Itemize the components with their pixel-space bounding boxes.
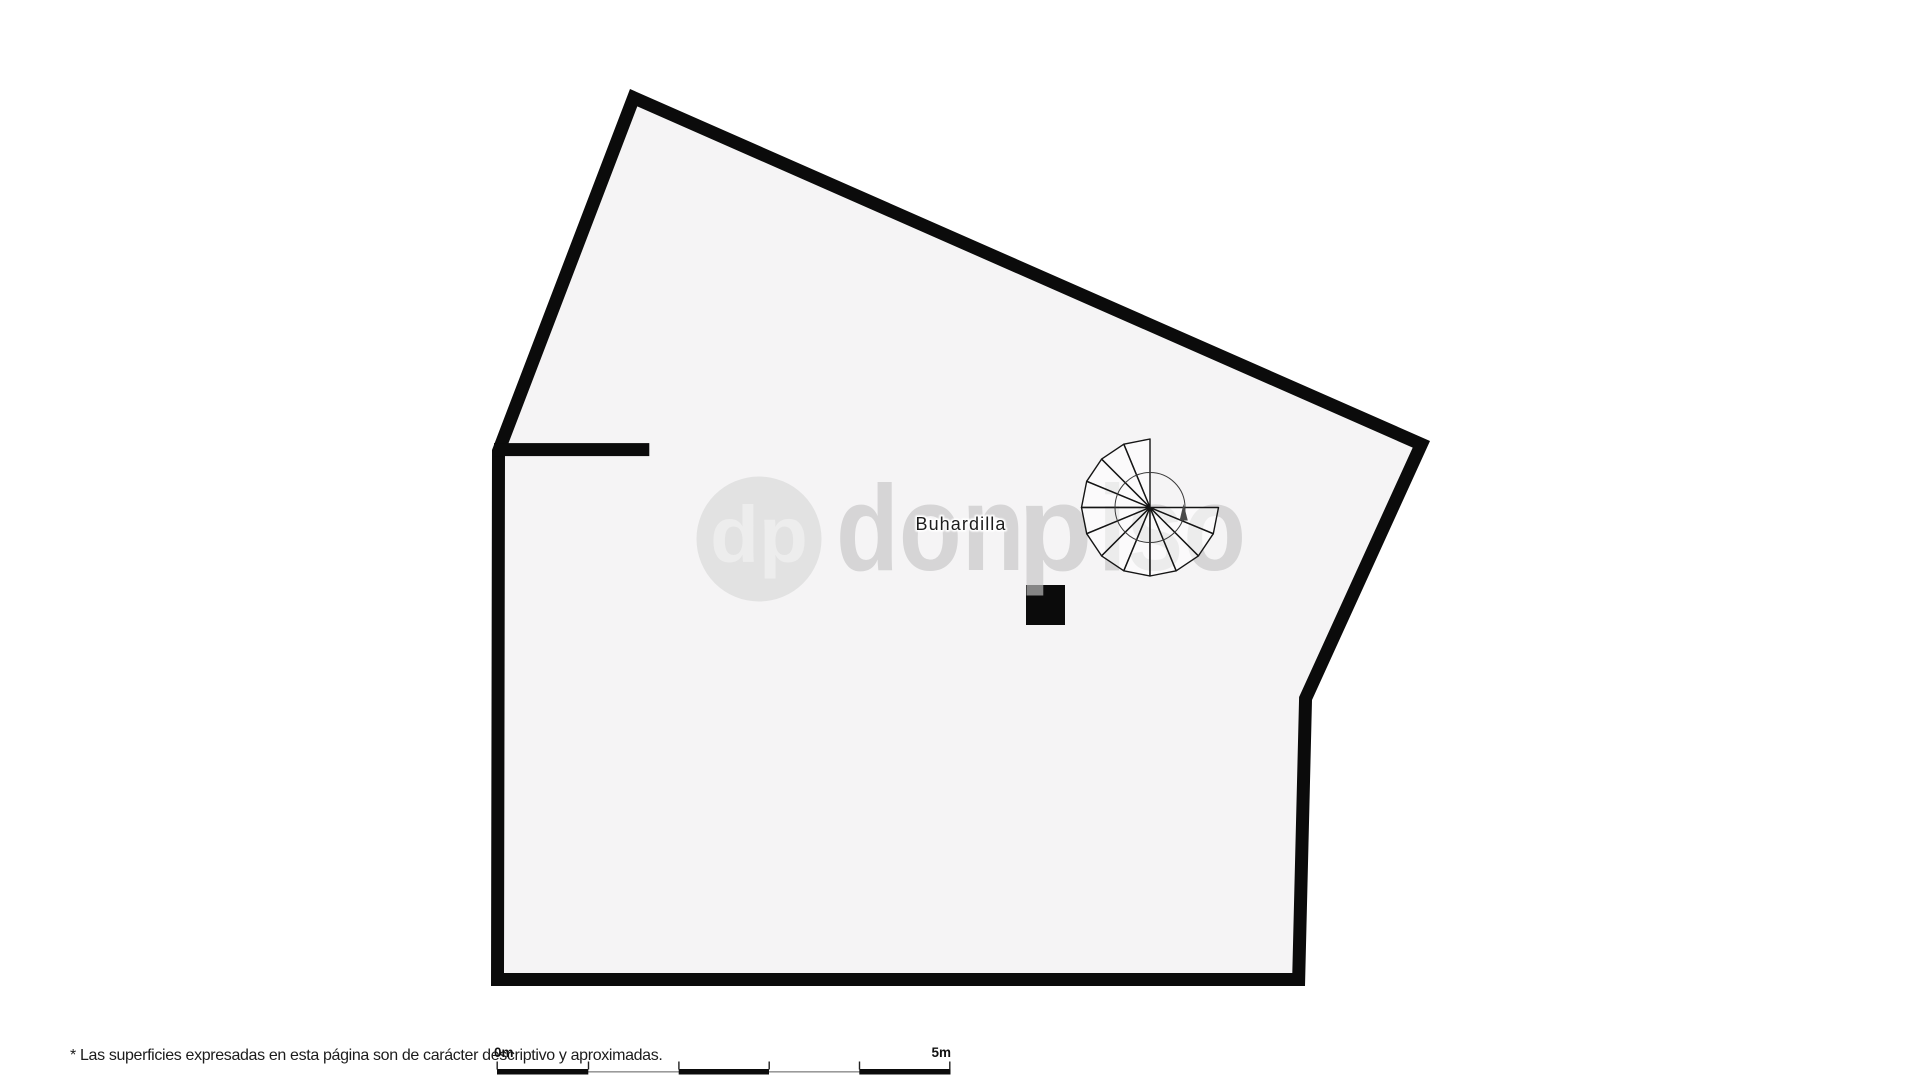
svg-text:5m: 5m: [931, 1045, 951, 1060]
svg-text:p: p: [1018, 460, 1093, 596]
svg-text:dp: dp: [710, 490, 808, 579]
svg-text:* Las superficies expresadas e: * Las superficies expresadas en esta pág…: [70, 1047, 662, 1064]
svg-text:Buhardilla: Buhardilla: [915, 514, 1006, 534]
svg-text:0m: 0m: [494, 1045, 514, 1060]
